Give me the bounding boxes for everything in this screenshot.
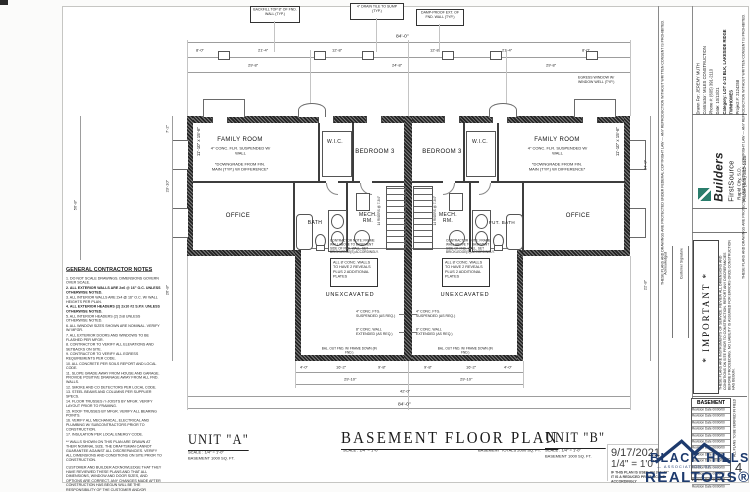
wall-segment (295, 250, 301, 361)
leader-line (376, 18, 377, 52)
room-note-family-a: *DOWNGRADE FROM FIN. MAIN (TYP.) W/ DIFF… (210, 162, 270, 172)
bal-note-a: BAL. OUT FND. W/ FRAME DOWN (IN FND.) (320, 347, 379, 355)
note-line: 1. DO NOT SCALE DRAWINGS. DIMENSIONS GOV… (66, 276, 162, 285)
egress-window-well (489, 103, 517, 117)
note-line: 14. FLOOR TRUSSES / I-JOISTS BY MFGR. VE… (66, 399, 162, 408)
page-number: 4 (735, 460, 742, 476)
room-label-unexcavated-b: UNEXCAVATED (433, 292, 497, 298)
blueprint-scan: 84'-0" 8'-0" 21'-4" 12'-8" 12'-8" 21'-4"… (0, 0, 750, 492)
builders-firstsource-logo-mark (698, 188, 711, 201)
dim-text: 23'-10" (165, 180, 170, 192)
dimension-line (80, 116, 81, 260)
corner-mark (0, 0, 8, 5)
extension-line (187, 256, 188, 410)
bal-note-b: BAL. OUT FND. W/ FRAME DOWN (IN FND.) (436, 347, 495, 355)
plan-title: BASEMENT FLOOR PLAN (341, 428, 559, 450)
toilet-tank (316, 245, 325, 251)
wall-callout-a: 8" CONC. WALL EXTENDED (AS REQ.) (356, 328, 401, 337)
leader-line (439, 24, 440, 52)
window-opening (492, 116, 508, 123)
extension-line (295, 361, 296, 388)
note-line: 4. ALL EXTERIOR HEADERS (2) 2x10 #2 S.P.… (66, 304, 162, 313)
copyright-text: THESE PLANS AND DRAWINGS ARE PROTECTED U… (742, 14, 746, 279)
dim-label: 26'-8" (165, 285, 170, 297)
callout-text: BACKFILL TOP 8" OF FND. WALL (TYP.) (252, 8, 298, 17)
callout-box: DAMP-PROOF EXT. OF FND. WALL (TYP.) (416, 9, 464, 26)
unit-b-area: BASEMENT 1000 SQ. FT. (545, 454, 592, 459)
revision-row: Revision Date 00/00/00 (692, 414, 709, 418)
room-label-family-a: FAMILY ROOM (205, 137, 275, 143)
dim-label: 34'-0" (643, 160, 648, 172)
extension-line (187, 40, 188, 116)
room-label-mech-b: MECH. RM. (433, 212, 463, 224)
extension-line (630, 40, 631, 116)
leader-line (274, 21, 275, 52)
room-label-futbath-b: FUT. BATH (487, 220, 517, 225)
dim-label: 9'-8" (424, 365, 432, 370)
important-title: * IMPORTANT * (701, 272, 711, 363)
dim-label: 29'-10" (460, 377, 472, 382)
conc-wall-note-text: ALL 8' CONC. WALLS TO HAVE 2 REVEALS PLU… (445, 260, 488, 279)
window-opening (366, 116, 382, 123)
room-sub-family-b: 4" CONC. FLR. SUSPENDED W/ WALL (525, 146, 590, 156)
extension-line (523, 361, 524, 388)
window-opening (444, 116, 460, 123)
room-label-bath-a: BATH (302, 220, 328, 226)
note-paragraph: ** WALLS SHOWN ON THIS PLAN ARE DRAWN AT… (66, 440, 162, 463)
room-label-family-b: FAMILY ROOM (522, 137, 592, 143)
note-line: 12. SMOKE AND CO DETECTORS PER LOCAL COD… (66, 385, 162, 390)
room-label-bedroom3-b: BEDROOM 3 (412, 149, 472, 155)
window-opening (582, 116, 598, 123)
revision-row: Revision Date 00/00/00 (692, 421, 709, 425)
note-line: 2. ALL EXTERIOR WALLS ARE 2x6 @ 16" O.C.… (66, 285, 162, 294)
wall-callout-b: 8" CONC. WALL EXTENDED (AS REQ.) (416, 328, 461, 337)
brand-builders: Builders (712, 118, 727, 202)
note-line: 5. ALL INTERIOR HEADERS (2) 2x8 UNLESS O… (66, 314, 162, 323)
conc-wall-notebox-a: ALL 8' CONC. WALLS TO HAVE 2 REVEALS PLU… (330, 258, 378, 287)
titleblock-rule (692, 208, 747, 209)
room-size-family-a: 11'-10" x 15'-6" (196, 127, 202, 158)
info-phone: Phone #: (605) 391-2110 (708, 10, 715, 115)
dim-label: 4'-0" (300, 365, 308, 370)
general-notes-title: GENERAL CONTRACTOR NOTES (66, 266, 152, 273)
window-well (630, 208, 646, 238)
note-line: 6. ALL WINDOW SIZES SHOWN ARE NOMINAL. V… (66, 323, 162, 332)
brand-firstsource: FirstSource (727, 118, 736, 202)
dim-text: 56'-8" (73, 200, 78, 210)
window-symbol (362, 51, 374, 60)
general-notes-list: 1. DO NOT SCALE DRAWINGS. DIMENSIONS GOV… (66, 276, 162, 492)
dim-label: 24'-8" (392, 63, 402, 68)
unit-b-title: UNIT "B" (545, 430, 605, 449)
dim-label: 4'-0" (504, 365, 512, 370)
customer-signature-text: Customer Signature (680, 248, 684, 279)
titleblock-divider (658, 6, 659, 481)
callout-text: DAMP-PROOF EXT. OF FND. WALL (TYP.) (418, 11, 462, 20)
window-opening (318, 116, 334, 123)
dim-label: 16'-2" (466, 365, 476, 370)
wall-segment (193, 181, 404, 183)
extension-line (408, 40, 409, 116)
window-symbol (218, 51, 230, 60)
black-hills-realtors-logo: BLACK HILLS — ASSOCIATION OF — REALTORS® (643, 438, 745, 490)
note-line: 13. STEEL BEAMS AND COLUMNS PER SUPPLIER… (66, 390, 162, 399)
dim-label: 23'-10" (165, 180, 170, 194)
room-sub-family-a: 4" CONC. FLR. SUSPENDED W/ WALL (208, 146, 273, 156)
room-note-family-b: *DOWNGRADE FROM FIN. MAIN (TYP.) W/ DIFF… (527, 162, 587, 172)
unit-a-area: BASEMENT 1000 SQ. FT. (188, 456, 235, 461)
note-line: 15. ROOF TRUSSES BY MFGR. VERIFY ALL BEA… (66, 409, 162, 418)
window-symbol (586, 51, 598, 60)
dimension-line (295, 372, 523, 373)
room-label-wic-b: W.I.C. (465, 139, 495, 145)
wall-segment (187, 250, 299, 256)
window-well (574, 99, 616, 117)
dim-label: 84'-0" (396, 33, 409, 39)
conc-wall-notebox-b: ALL 8' CONC. WALLS TO HAVE 2 REVEALS PLU… (442, 258, 490, 287)
room-label-bedroom3-a: BEDROOM 3 (345, 149, 405, 155)
dim-label: 7'-2" (165, 125, 170, 134)
dim-text: 22'-8" (643, 280, 648, 290)
furnace (356, 193, 370, 211)
dim-label: 29'-10" (344, 377, 356, 382)
window-opening (212, 116, 228, 123)
dim-label: 12'-8" (332, 48, 342, 53)
dimension-line (295, 384, 523, 385)
copyright-note: THESE PLANS AND DRAWINGS ARE PROTECTED U… (661, 20, 665, 287)
mech-line2: RM. (353, 218, 383, 224)
copyright-note: THESE PLANS AND DRAWINGS ARE PROTECTED U… (742, 14, 746, 281)
copyright-text: THESE PLANS AND DRAWINGS ARE PROTECTED U… (661, 20, 665, 285)
note-line: 10. ALL CONCRETE PER SOILS REPORT AND LO… (66, 361, 162, 370)
window-well (172, 140, 188, 170)
leader-line (411, 314, 417, 315)
stamp-rule (607, 444, 608, 481)
room-label-mech-a: MECH. RM. (353, 212, 383, 224)
egress-note: EGRESS WINDOW W/ WINDOW WELL (TYP.) (578, 76, 623, 85)
dim-label: 9'-8" (378, 365, 386, 370)
dim-text: 7'-2" (165, 125, 170, 133)
dim-label: 16'-2" (336, 365, 346, 370)
stair-run (413, 186, 433, 250)
dim-label: 21'-4" (502, 48, 512, 53)
dim-label: 22'-8" (643, 280, 648, 292)
window-well (203, 99, 245, 117)
leader-line (399, 314, 405, 315)
wall-segment (517, 250, 630, 256)
leader-line (411, 332, 417, 333)
room-label-unexcavated-a: UNEXCAVATED (318, 292, 382, 298)
dim-label: 21'-4" (258, 48, 268, 53)
unit-a-title: UNIT "A" (188, 432, 249, 451)
ftg-callout-a: 4" CONC. FTG. SUSPENDED (AS REQ.) (356, 310, 401, 319)
note-line: 7. ALL EXTERIOR DOORS AND WINDOWS TO BE … (66, 333, 162, 342)
extension-line (630, 256, 631, 410)
dim-label: 56'-8" (73, 200, 78, 212)
contractor-note-a: CONTRACTOR NOTE: FRAME WALL ABOVE TO BAS… (330, 239, 380, 255)
conc-wall-note-text: ALL 8' CONC. WALLS TO HAVE 2 REVEALS PLU… (333, 260, 376, 279)
window-symbol (442, 51, 454, 60)
egress-window-well (298, 103, 326, 117)
contractor-note-b: CONTRACTOR NOTE: FRAME WALL ABOVE TO BAS… (446, 239, 496, 255)
mech-line2: RM. (433, 218, 463, 224)
unit-b-scale: SCALE : 1/4" = 1'-0" (545, 448, 581, 453)
stair-run (386, 186, 406, 250)
note-line: 9. CONTRACTOR TO VERIFY ALL EGRESS REQUI… (66, 352, 162, 361)
dim-label: 84'-0" (398, 401, 411, 407)
note-paragraph: CUSTOMER AND BUILDER ACKNOWLEDGE THAT TH… (66, 465, 162, 492)
note-line: 3. ALL INTERIOR WALLS ARE 2x4 @ 16" O.C.… (66, 295, 162, 304)
window-well (172, 208, 188, 238)
callout-box: BACKFILL TOP 8" OF FND. WALL (TYP.) (250, 6, 300, 23)
dim-label: 29'-8" (546, 63, 556, 68)
plan-total: BASEMENT TOTALS 2000 SQ. FT. (478, 448, 541, 453)
note-line: 16. VERIFY ALL MECHANICAL, ELECTRICAL AN… (66, 418, 162, 432)
window-symbol (314, 51, 326, 60)
titleblock-rule (692, 232, 747, 233)
dimension-line (172, 116, 173, 361)
furnace (449, 193, 463, 211)
revision-header: BASEMENT (692, 399, 730, 408)
signature-line (688, 246, 689, 338)
wall-segment (318, 123, 320, 181)
important-box: * IMPORTANT * (693, 240, 719, 394)
wall-segment (517, 250, 523, 361)
room-label-office-b: OFFICE (543, 213, 613, 219)
ftg-callout-b: 4" CONC. FTG. SUSPENDED (AS REQ.) (416, 310, 461, 319)
project-info-block: Drawn For: JEREMY MUTH Contractor: MILES… (695, 10, 741, 115)
wall-segment (293, 183, 295, 252)
revision-row: Revision Date 00/00/00 (692, 434, 709, 438)
room-size-text: 11'-10" x 15'-6" (615, 127, 621, 156)
wall-segment (497, 123, 499, 181)
info-category: Category: LOT 4-13 BLK, LAKESIDE RIDGE T… (721, 10, 734, 115)
note-line: 17. INSULATION PER LOCAL ENERGY CODE. (66, 432, 162, 437)
titleblock-rule (692, 396, 747, 397)
unit-a-scale: SCALE : 1/4" = 1'-0" (188, 450, 224, 455)
revision-row: Revision Date 00/00/00 (692, 427, 709, 431)
sink (331, 214, 344, 229)
project-info-lines: Drawn For: JEREMY MUTH Contractor: MILES… (695, 10, 741, 115)
room-label-office-a: OFFICE (203, 213, 273, 219)
dim-label: 29'-8" (248, 63, 258, 68)
dimension-line (650, 116, 651, 361)
callout-text: 4" DRAIN TILE TO SUMP (TYP.) (352, 5, 402, 14)
callout-box: 4" DRAIN TILE TO SUMP (TYP.) (350, 3, 404, 20)
plan-scale: SCALE : 1/4" = 1'-0" (343, 448, 379, 453)
room-size-text: 11'-10" x 15'-6" (196, 127, 202, 156)
signature-line (672, 246, 673, 338)
window-symbol (490, 51, 502, 60)
dim-text: 26'-8" (165, 285, 170, 295)
revision-row: Revision Date 00/00/00 (692, 408, 709, 412)
dim-label: 42'-0" (400, 389, 410, 394)
info-project-number: Project #: 2124258 (735, 10, 742, 115)
note-line: 8. CONTRACTOR TO VERIFY ALL ELEVATIONS A… (66, 342, 162, 351)
dim-label: 8'-0" (196, 48, 204, 53)
customer-signature-label: Customer Signature (680, 248, 684, 281)
room-label-wic-a: W.I.C. (320, 139, 350, 145)
room-size-family-b: 11'-10" x 15'-6" (615, 127, 621, 158)
dim-text: 34'-0" (643, 160, 648, 170)
leader-line (399, 332, 405, 333)
note-line: 11. SLOPE GRADE AWAY FROM HOUSE AND GARA… (66, 371, 162, 385)
